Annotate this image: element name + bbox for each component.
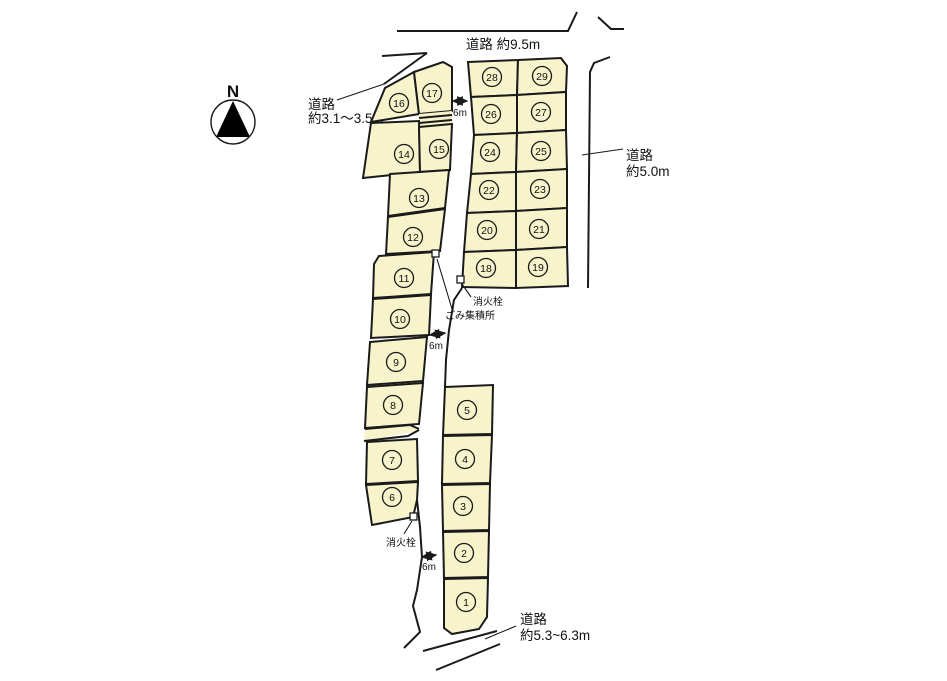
hydrant-marker-bottom-icon [410,513,417,520]
width-label-top: 6m [453,108,467,119]
plot-16: 16 [371,72,419,122]
plot-26-number: 26 [485,109,497,121]
plot-25-number: 25 [535,146,547,158]
plot-14-shape [363,121,420,178]
plot-3-shape [442,484,490,531]
plot-9: 9 [367,337,427,385]
plot-18: 18 [462,250,516,288]
plot-22-number: 22 [483,185,495,197]
road-right: 道路 約5.0m [582,57,670,288]
road-center-right-edge-line [445,288,462,387]
site-plan: N 道路 約9.5m 道路 約3.1〜3.5m 道路 約5.0m 道路 約5.3… [0,0,947,681]
hydrant-bottom-pointer-line [404,521,412,534]
road-bottom-label-2: 約5.3~6.3m [520,628,590,643]
road-top: 道路 約9.5m [382,12,624,56]
plot-10: 10 [371,295,431,338]
plot-15: 15 [419,124,452,172]
hydrant-marker-mid-icon [457,276,464,283]
road-right-pointer-line [582,149,623,155]
plot-16-number: 16 [393,98,405,110]
plot-4: 4 [442,435,492,484]
plot-2-number: 2 [461,548,467,560]
plot-13-number: 13 [413,193,425,205]
plot-3-number: 3 [460,501,466,513]
road-right-label-1: 道路 [626,148,654,163]
plot-19-number: 19 [532,262,544,274]
plot-5-number: 5 [464,405,470,417]
plot-1: 1 [444,578,488,634]
north-arrow-icon [216,101,250,137]
plot-28: 28 [468,60,518,97]
north-label: N [227,82,239,101]
north-compass: N [211,82,255,144]
plot-11: 11 [373,252,434,298]
plot-28-number: 28 [486,72,498,84]
road-left-label-1: 道路 [308,97,335,112]
road-bottom-upper-edge-line [423,631,497,651]
plot-27: 27 [517,92,566,133]
plot-5: 5 [443,385,493,435]
garbage-pointer-line [437,259,452,309]
width-label-bottom: 6m [422,562,436,573]
plot-12-number: 12 [407,232,419,244]
plot-26: 26 [471,95,517,135]
plot-29: 29 [517,58,567,95]
plot-17-number: 17 [426,88,438,100]
plot-29-number: 29 [536,71,548,83]
road-bottom-lower-edge-line [436,644,500,670]
plot-3: 3 [442,484,490,531]
hydrant-mid-label: 消火栓 [473,295,503,308]
hydrant-bottom-label: 消火栓 [386,536,416,549]
plot-20-number: 20 [481,225,493,237]
plot-4-number: 4 [462,454,468,466]
road-top-label: 道路 約9.5m [466,37,540,52]
road-bottom-label-1: 道路 [520,612,548,627]
plot-11-number: 11 [399,273,410,285]
road-top-lower-edge-line [382,53,427,56]
plot-8-number: 8 [390,400,396,412]
road-right-label-2: 約5.0m [626,164,670,179]
garbage-marker-icon [432,250,439,257]
plot-7-number: 7 [389,455,395,467]
plot-17: 17 [414,62,452,114]
width-annotation-top: 6m [453,101,467,119]
plot-24-number: 24 [484,147,496,159]
plot-2: 2 [443,531,489,578]
plot-18-number: 18 [480,263,492,275]
width-arrow-mid [430,333,445,335]
plot-7: 7 [366,439,418,484]
road-center-left-edge-line [404,500,422,648]
plot-19: 19 [516,247,568,288]
plot-21: 21 [516,208,567,250]
plot-9-number: 9 [393,357,399,369]
road-top-corner-line [598,17,624,29]
plot-15-number: 15 [433,144,445,156]
plot-14-number: 14 [398,149,410,161]
garbage-label: ごみ集積所 [445,309,495,322]
plot-10-number: 10 [394,314,406,326]
plot-6-number: 6 [389,492,395,504]
plot-25: 25 [516,130,567,172]
site-plan-drawing: N 道路 約9.5m 道路 約3.1〜3.5m 道路 約5.0m 道路 約5.3… [0,0,947,681]
plot-21-number: 21 [533,224,545,236]
plot-24: 24 [471,133,517,174]
plot-1-number: 1 [463,597,469,609]
plot-23: 23 [516,169,567,211]
plot-22: 22 [467,172,516,213]
road-left-pointer-line [337,84,384,100]
plot-23-number: 23 [534,184,546,196]
plot-27-number: 27 [535,107,547,119]
plot-14: 14 [363,121,420,178]
plot-8: 8 [365,383,423,428]
road-top-edge-line [397,12,577,31]
plot-12: 12 [386,209,445,254]
width-annotation-mid: 6m [429,333,445,352]
width-annotation-bottom: 6m [422,555,436,573]
width-arrow-bottom [422,555,436,557]
plot-20: 20 [464,211,516,252]
width-label-mid: 6m [429,341,443,352]
road-right-edge-line [588,57,610,288]
